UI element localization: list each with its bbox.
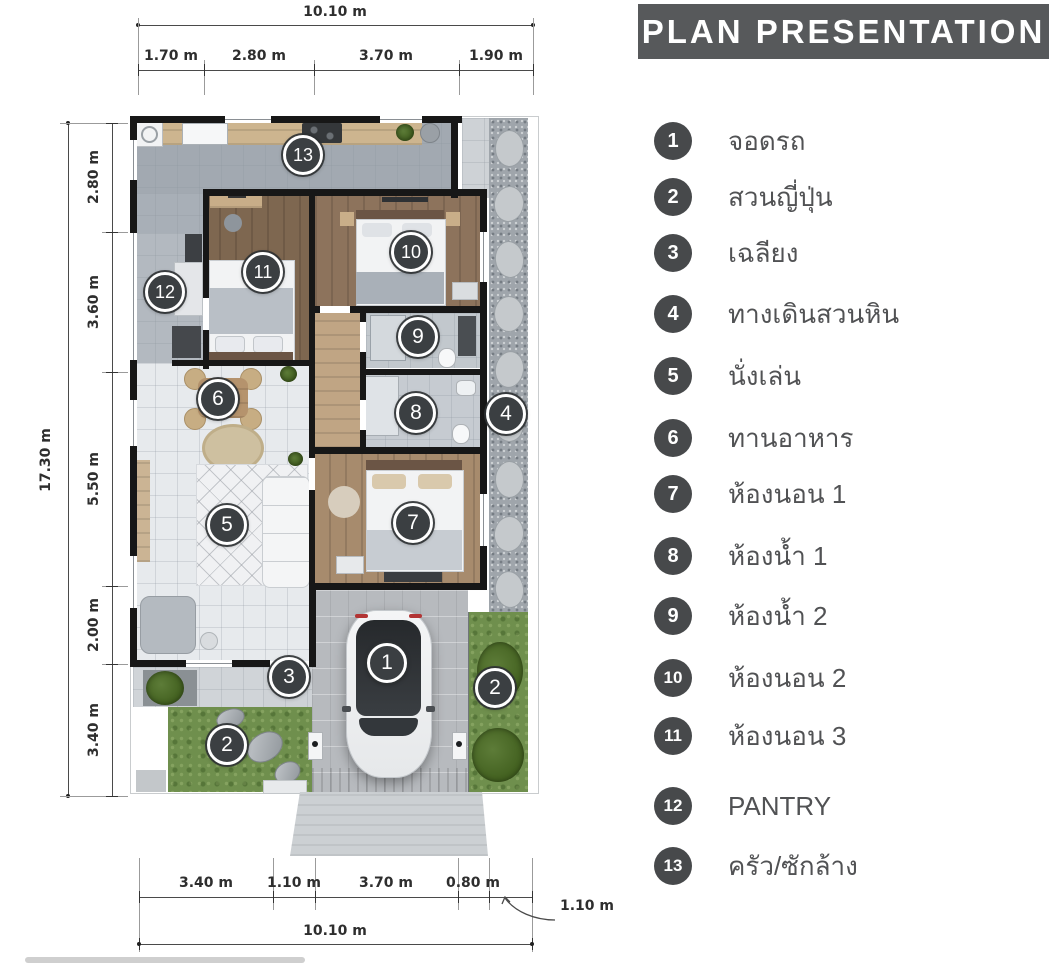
legend-number-badge: 10 (654, 659, 692, 697)
legend-item-label: ห้องนอน 1 (728, 474, 846, 515)
bed-headboard (366, 460, 462, 470)
dim-tick (314, 64, 315, 76)
wall-bathroom1-top (360, 369, 487, 375)
wall-bathroom1-bottom (309, 447, 487, 454)
legend-item-5: 5 นั่งเล่น (640, 356, 1040, 396)
title-bar: PLAN PRESENTATION (638, 4, 1049, 59)
legend-item-13: 13 ครัว/ซักล้าง (640, 846, 1040, 886)
legend-number-badge: 11 (654, 717, 692, 755)
dim-label: 0.80 m (446, 875, 500, 891)
bathroom2-door (360, 322, 366, 352)
plan-marker-8: 8 (396, 393, 436, 433)
legend-item-label: ห้องน้ำ 2 (728, 596, 828, 637)
pantry-washer (172, 326, 201, 358)
wall-living-right-lower (309, 583, 316, 667)
laundry-window (130, 140, 137, 180)
dim-label-leader: 1.10 m (560, 898, 614, 914)
kitchen-stool (420, 123, 440, 143)
dim-line-top-overall (138, 25, 533, 26)
car-mirror (426, 706, 435, 712)
dim-tick (106, 372, 118, 373)
dim-tick (459, 64, 460, 76)
plan-marker-9: 9 (398, 317, 438, 357)
cropped-bottom-bar (25, 957, 305, 963)
dim-label: 3.70 m (359, 48, 413, 64)
plan-marker-1: 1 (367, 643, 407, 683)
porch-step (263, 780, 307, 794)
dim-line-bottom-segments (139, 897, 532, 898)
dim-tick (106, 796, 118, 797)
bedroom1-window (480, 494, 487, 546)
dim-label-left-overall: 17.30 m (38, 428, 54, 492)
dim-label: 1.70 m (144, 48, 198, 64)
dim-line-bottom-overall (139, 944, 532, 945)
legend-item-1: 1 จอดรถ (640, 121, 1040, 161)
dim-label: 5.50 m (86, 452, 102, 506)
bed-pillow (372, 474, 406, 489)
wall-bedroom3-bottom (172, 360, 315, 366)
car-mirror (342, 706, 351, 712)
legend-number-badge: 7 (654, 475, 692, 513)
bed-pillow (362, 223, 392, 237)
legend-item-label: ห้องนอน 3 (728, 716, 846, 757)
dim-leader-curve (497, 896, 559, 924)
wheel-stop-dot (456, 741, 462, 747)
bed-pillow (253, 336, 283, 353)
dim-tick (489, 891, 490, 903)
dim-line-left-overall (68, 123, 69, 796)
desk-chair (224, 214, 242, 232)
dim-label: 2.80 m (86, 150, 102, 204)
planter-bush (146, 671, 184, 705)
plan-marker-4: 4 (486, 394, 526, 434)
stepping-stone (495, 461, 524, 498)
dim-dot (530, 942, 534, 946)
nightstand (340, 212, 354, 226)
legend-item-label: ห้องน้ำ 1 (728, 536, 828, 577)
plan-marker-7: 7 (393, 503, 433, 543)
wheel-stop-dot (312, 741, 318, 747)
dim-ext (533, 18, 534, 95)
legend-item-label: ทานอาหาร (728, 418, 853, 459)
legend-number-badge: 9 (654, 597, 692, 635)
foot-bench (384, 572, 442, 582)
kitchen-window (225, 116, 271, 123)
dim-tick (138, 64, 139, 76)
round-rug (328, 486, 360, 518)
legend-item-label: สวนญี่ปุ่น (728, 177, 833, 218)
dresser (336, 556, 364, 574)
shower (365, 376, 399, 436)
pantry-window (130, 233, 137, 360)
dim-tick (106, 232, 118, 233)
kitchen-sink (182, 123, 228, 145)
dim-tick (106, 586, 118, 587)
plan-marker-12: 12 (145, 272, 185, 312)
dim-label: 3.40 m (86, 703, 102, 757)
legend-number-badge: 4 (654, 295, 692, 333)
kitchen-window (380, 116, 422, 123)
plan-marker-5: 5 (207, 505, 247, 545)
legend-number-badge: 13 (654, 847, 692, 885)
bed-pillow (215, 336, 245, 353)
bedroom2-door (320, 306, 350, 313)
bedroom3-door (203, 298, 209, 330)
dim-tick (106, 123, 118, 124)
dim-label: 2.80 m (232, 48, 286, 64)
legend-number-badge: 5 (654, 357, 692, 395)
legend-item-9: 9 ห้องน้ำ 2 (640, 596, 1040, 636)
kitchen-hall-floor (133, 193, 203, 233)
dim-tick (458, 891, 459, 903)
lounge-chair (140, 596, 196, 654)
car-windshield (359, 718, 418, 736)
legend-number-badge: 2 (654, 178, 692, 216)
legend-number-badge: 1 (654, 122, 692, 160)
dim-line-left-segments (112, 123, 113, 796)
dim-line-top-segments (138, 70, 533, 71)
dim-tick (106, 664, 118, 665)
plan-presentation-page: 1 2 2 3 4 5 6 7 8 9 10 11 12 13 10.10 m … (0, 0, 1049, 963)
entry-path (290, 792, 488, 856)
page-title: PLAN PRESENTATION (642, 13, 1046, 51)
car-taillight (409, 614, 422, 618)
vanity (458, 316, 476, 356)
dim-label-bottom-overall: 10.10 m (303, 923, 367, 939)
legend-number-badge: 8 (654, 537, 692, 575)
washer-door (141, 126, 158, 143)
dim-ext (138, 18, 139, 95)
plan-marker-3: 3 (269, 657, 309, 697)
hallway-floor (315, 306, 360, 448)
tv-console (382, 197, 428, 202)
living-window (130, 556, 137, 608)
plan-marker-2b: 2 (475, 668, 515, 708)
bed-blanket (356, 272, 444, 304)
dim-label-top-overall: 10.10 m (303, 4, 367, 20)
dim-label: 1.10 m (267, 875, 321, 891)
plan-marker-6: 6 (198, 379, 238, 419)
plan-marker-11: 11 (243, 252, 283, 292)
dim-dot (137, 942, 141, 946)
dim-tick (273, 891, 274, 903)
dim-tick (204, 64, 205, 76)
wall-kitchen-right (451, 116, 458, 198)
bed-pillow (418, 474, 452, 489)
legend-item-2: 2 สวนญี่ปุ่น (640, 177, 1040, 217)
legend-item-12: 12 PANTRY (640, 786, 1040, 826)
dim-tick (533, 64, 534, 76)
living-bottom-window (186, 660, 232, 667)
bedroom2-window (480, 232, 487, 282)
legend-item-label: ห้องนอน 2 (728, 658, 846, 699)
dim-label: 2.00 m (86, 598, 102, 652)
dim-tick (139, 891, 140, 903)
stepping-stone (495, 130, 524, 167)
side-table (200, 632, 218, 650)
garden-bush (472, 728, 524, 782)
legend-item-7: 7 ห้องนอน 1 (640, 474, 1040, 514)
legend-number-badge: 3 (654, 234, 692, 272)
car (346, 610, 432, 778)
legend-item-11: 11 ห้องนอน 3 (640, 716, 1040, 756)
toilet (438, 348, 456, 368)
wall-bedroom3-right (309, 189, 315, 455)
legend-number-badge: 6 (654, 419, 692, 457)
legend-item-3: 3 เฉลียง (640, 233, 1040, 273)
sideboard (135, 460, 150, 562)
sink (456, 380, 476, 396)
wall-bedroom1-bottom (309, 583, 487, 590)
legend-item-label: ทางเดินสวนหิน (728, 294, 899, 335)
dim-label: 1.90 m (469, 48, 523, 64)
pantry-cabinet (185, 234, 202, 262)
legend-item-label: เฉลียง (728, 233, 798, 274)
plan-marker-13: 13 (283, 135, 323, 175)
plant (288, 452, 303, 466)
bed-blanket (209, 288, 293, 334)
dim-label: 3.70 m (359, 875, 413, 891)
living-window (130, 400, 137, 446)
plan-marker-2: 2 (207, 725, 247, 765)
plan-marker-10: 10 (391, 232, 431, 272)
kitchen-plant (396, 124, 414, 141)
car-taillight (355, 614, 368, 618)
nightstand (446, 212, 460, 226)
legend-item-8: 8 ห้องน้ำ 1 (640, 536, 1040, 576)
legend-number-badge: 12 (654, 787, 692, 825)
legend-item-10: 10 ห้องนอน 2 (640, 658, 1040, 698)
legend-item-4: 4 ทางเดินสวนหิน (640, 294, 1040, 334)
dim-tick (315, 891, 316, 903)
legend-item-label: จอดรถ (728, 121, 805, 162)
legend-item-label: นั่งเล่น (728, 356, 801, 397)
sofa (262, 476, 310, 588)
bedroom1-door (309, 458, 315, 490)
legend-item-6: 6 ทานอาหาร (640, 418, 1040, 458)
dim-label: 3.60 m (86, 275, 102, 329)
plant (280, 366, 297, 382)
stepping-stone (494, 296, 524, 332)
legend-item-label: ครัว/ซักล้าง (728, 846, 858, 887)
wall-bedroom3-left (203, 189, 209, 369)
dresser (452, 282, 478, 300)
corner-pad (136, 770, 166, 792)
wall-bedrooms-top (203, 189, 487, 196)
toilet (452, 424, 470, 444)
legend-item-label: PANTRY (728, 791, 831, 822)
side-terrace-tiles (462, 118, 489, 198)
bathroom1-door (360, 400, 366, 430)
dim-label: 3.40 m (179, 875, 233, 891)
bed-headboard (356, 210, 444, 219)
